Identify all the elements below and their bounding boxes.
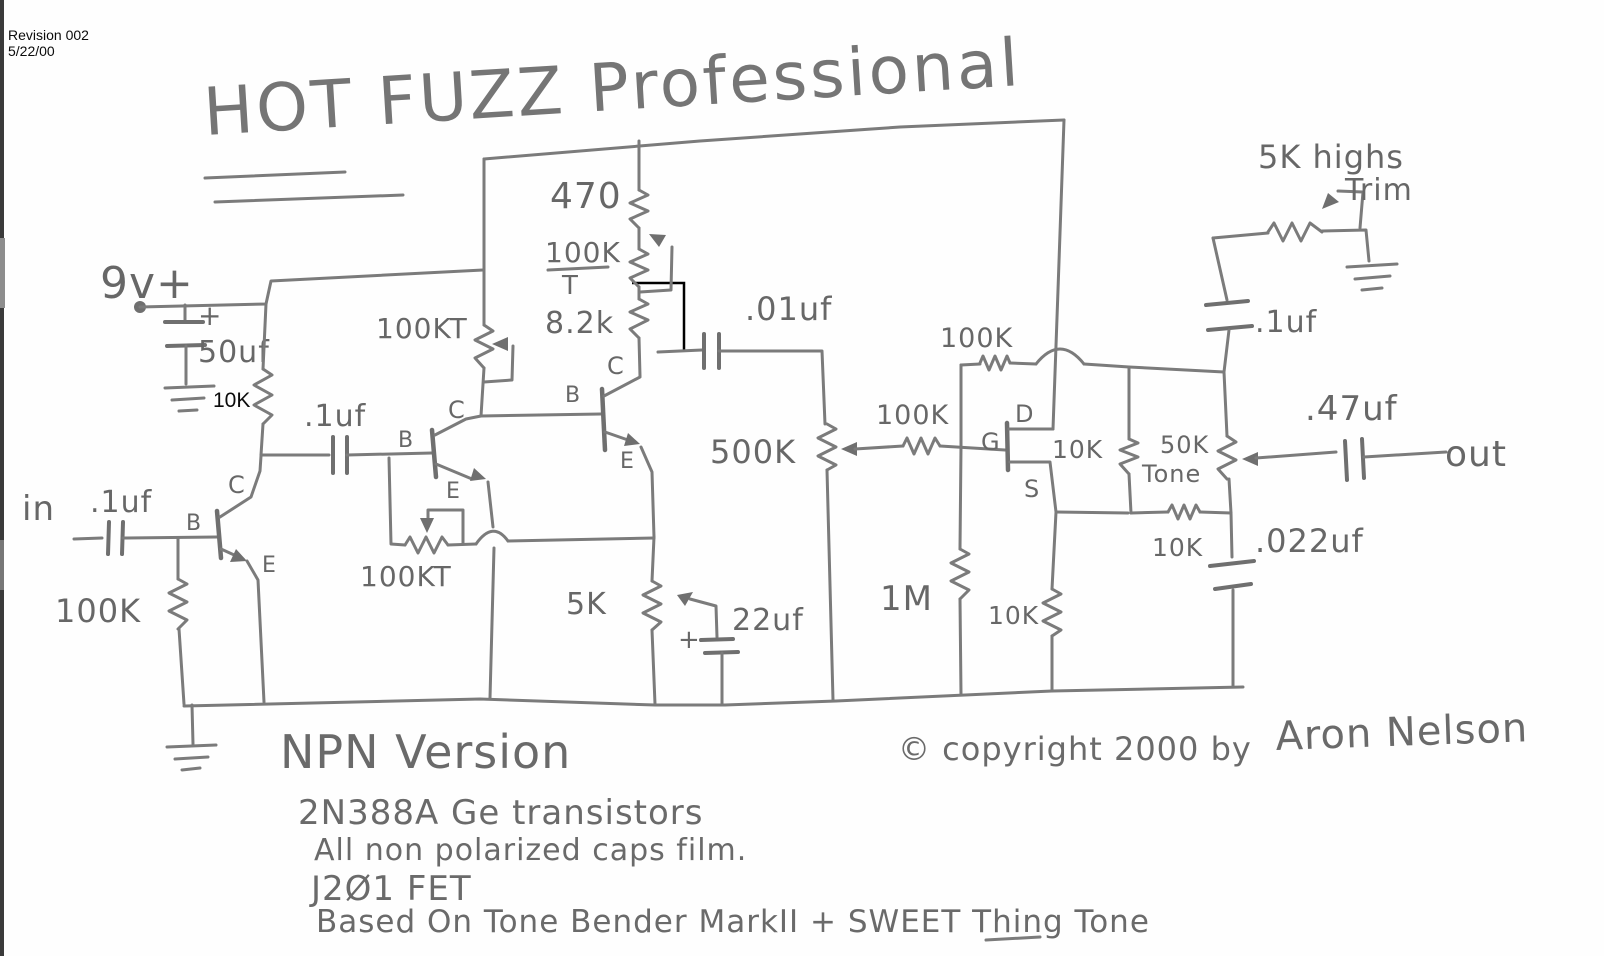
ground-bar (167, 745, 216, 747)
resistor-100k-gate-label: 100K (876, 400, 950, 431)
capacitor-1uf-out-label: .1uf (1255, 305, 1318, 340)
input-label: in (22, 489, 55, 529)
wire (488, 482, 493, 527)
resistor-100k-feedback-label: 100K (940, 323, 1014, 354)
trimmer-5k-highs-symbol (1268, 223, 1322, 241)
wire-input (74, 538, 102, 539)
wiper-arrow (420, 518, 434, 533)
pin-label-d: D (1015, 400, 1034, 428)
title-underline (205, 172, 345, 178)
trimmer-100k-col-label: 100K (545, 236, 621, 269)
resistor-100k-input-label: 100K (55, 592, 141, 630)
resistor-1m-label: 1M (880, 579, 933, 619)
wire (652, 537, 654, 581)
resistor-5k-symbol (643, 581, 661, 630)
note-based-on: Based On Tone Bender MarkII + SWEET Thin… (316, 904, 1150, 940)
wire (1129, 474, 1131, 513)
wire-q2c-q3b (481, 414, 601, 416)
wire (347, 453, 432, 455)
capacitor-1uf-out-plate (1206, 301, 1248, 305)
pin-label-g: G (981, 428, 1001, 456)
note-transistors: 2N388A Ge transistors (298, 793, 704, 833)
resistor-10k-drain-symbol (1120, 439, 1138, 474)
wire (1084, 364, 1224, 372)
potentiometer-50k-tone-symbol (1218, 436, 1236, 479)
wiper-arrow (649, 234, 666, 247)
capacitor-022uf-label: .022uf (1255, 522, 1364, 560)
wire (1229, 479, 1232, 557)
trimmer-100kt-lower-symbol (405, 537, 448, 553)
copyright-block: © copyright 2000 by Aron Nelson (898, 705, 1529, 768)
trimmer-100kt-upper-label: 100KT (376, 312, 468, 345)
pin-label-b: B (398, 428, 414, 453)
resistor-8k2-symbol (630, 299, 648, 338)
wire (179, 629, 184, 704)
fet-bar (1007, 423, 1008, 470)
capacitor-22uf-polarity: + (678, 625, 701, 655)
capacitor-22uf-label: 22uf (732, 603, 804, 638)
potentiometer-500k-symbol (818, 424, 836, 470)
trimmer-100kt-lower-bracket (428, 510, 463, 543)
wire (855, 446, 903, 449)
capacitor-022uf-plate (1210, 561, 1254, 566)
wire (1131, 512, 1168, 513)
wire (1052, 512, 1056, 589)
wire (652, 630, 655, 704)
capacitor-01uf-label: .01uf (745, 290, 832, 328)
wire (247, 561, 264, 702)
wire-hop (476, 531, 508, 544)
resistor-470-symbol (630, 190, 648, 228)
trimmer-5k-highs-name: Trim (1344, 173, 1413, 208)
capacitor-50uf-label: 50uf (198, 335, 270, 370)
potentiometer-500k-label: 500K (710, 433, 796, 471)
wire (1364, 452, 1446, 457)
pin-label-b: B (565, 383, 581, 408)
wire (641, 447, 654, 537)
scan-artifacts (0, 0, 5, 956)
note-version: NPN Version (280, 725, 571, 779)
wire (719, 351, 825, 424)
trimmer-100kt-upper-symbol (475, 325, 493, 368)
revision-date: 5/22/00 (8, 43, 55, 59)
copyright-author: Aron Nelson (1275, 705, 1529, 760)
wire-drain-column (1053, 120, 1064, 429)
ground-bar (175, 757, 208, 759)
wire (658, 350, 702, 352)
ground-symbol (165, 386, 214, 411)
schematic-canvas: Revision 002 5/22/00 10K HOT FUZZ Profes… (0, 0, 1604, 956)
capacitor-50uf-polarity: + (198, 299, 222, 332)
pin-label-b: B (186, 511, 202, 536)
resistor-10k-typed-label: 10K (213, 389, 250, 412)
resistor-8k2-label: 8.2k (545, 306, 614, 341)
supply-label: 9v+ (100, 258, 194, 309)
trimmer-5k-highs-label: 5K highs (1258, 138, 1404, 176)
wire (827, 470, 833, 700)
scan-smudge (0, 238, 5, 308)
resistor-10k-q1-symbol (254, 369, 272, 424)
revision-label: Revision 002 (8, 27, 89, 43)
wire (639, 338, 640, 376)
resistor-10k-source-label: 10K (988, 601, 1039, 630)
note-caps: All non polarized caps film. (314, 833, 747, 868)
wire (508, 538, 654, 541)
fet-j201: G D S (981, 400, 1056, 512)
note-fet: J2Ø1 FET (309, 869, 472, 909)
wire (1213, 238, 1227, 300)
resistor-100k-input-symbol (169, 579, 187, 629)
transistor-q2-bar (432, 430, 436, 477)
pin-label-c: C (228, 471, 246, 499)
potentiometer-50k-label: 50K (1160, 431, 1210, 459)
wire (448, 544, 476, 545)
wire-ground-rail (184, 687, 1243, 706)
wire (1256, 452, 1336, 458)
title-block: HOT FUZZ Professional (201, 24, 1023, 151)
transistor-q3-bar (602, 389, 605, 450)
resistor-100k-gate-symbol (903, 438, 940, 454)
ground-bar (165, 386, 214, 388)
transistor-q2: B C E (398, 396, 494, 698)
ground-bar (182, 768, 200, 770)
pin-label-e: E (262, 553, 277, 578)
pin-label-c: C (607, 352, 625, 380)
schematic-drawing: 9v+ + 50uf in .1uf 100K (22, 120, 1507, 770)
pin-label-e: E (446, 479, 461, 504)
title-underline (215, 195, 403, 202)
capacitor-47uf-label: .47uf (1305, 389, 1398, 429)
ground-symbol (1347, 264, 1397, 290)
wire (961, 364, 980, 365)
resistor-100k-feedback-symbol (980, 356, 1010, 370)
transistor-q2-emitter (436, 464, 472, 479)
wire (1224, 330, 1229, 372)
ground-bar (1347, 264, 1397, 267)
pin-label-c: C (448, 396, 466, 424)
wire (1322, 230, 1369, 261)
scan-smudge (0, 540, 4, 590)
capacitor-22uf-plate (701, 639, 733, 640)
wire (192, 705, 193, 744)
output-label: out (1445, 434, 1507, 475)
wire (389, 458, 405, 545)
scanned-schematic-page: Revision 002 5/22/00 10K HOT FUZZ Profes… (0, 0, 1604, 956)
resistor-5k-label: 5K (566, 587, 607, 622)
ground-symbol (167, 745, 216, 770)
trimmer-100kt-lower-label: 100KT (360, 560, 452, 593)
wiper-arrow (1322, 193, 1339, 209)
wire (490, 548, 494, 698)
ground-bar (179, 410, 197, 411)
wire (123, 537, 217, 538)
resistor-10k-mid-symbol (1168, 505, 1200, 519)
copyright-line: © copyright 2000 by (898, 730, 1252, 768)
resistor-1m-symbol (951, 549, 969, 599)
page-title: HOT FUZZ Professional (201, 24, 1023, 151)
wire (1010, 363, 1036, 364)
capacitor-interstage-label: .1uf (304, 399, 367, 434)
emitter-arrow (470, 468, 486, 481)
capacitor-022uf-plate (1215, 584, 1251, 589)
capacitor-input-label: .1uf (90, 485, 153, 520)
emitter-arrow (624, 433, 640, 446)
wire (960, 599, 961, 694)
wire (1213, 233, 1268, 238)
resistor-10k-drain-label: 10K (1052, 435, 1103, 464)
wire (261, 424, 263, 455)
wire (1200, 512, 1231, 513)
pin-label-e: E (620, 449, 635, 474)
potentiometer-50k-name: Tone (1141, 460, 1201, 488)
capacitor-47uf-plate (1362, 439, 1364, 478)
ground-bar (1355, 276, 1390, 279)
resistor-10k-source-symbol (1043, 589, 1061, 636)
wire (1224, 372, 1227, 436)
wire (960, 447, 961, 549)
trimmer-100k-col-symbol (630, 249, 648, 287)
transistor-q3-emitter (605, 432, 628, 440)
wire-hop (1036, 349, 1084, 364)
scan-edge (0, 0, 4, 956)
wire (481, 368, 484, 416)
capacitor-47uf-plate (1345, 441, 1347, 480)
wire (1056, 512, 1128, 513)
resistor-470-label: 470 (550, 176, 622, 217)
trimmer-100k-col-t: T (561, 271, 579, 301)
capacitor-input-plate (108, 522, 109, 554)
ground-bar (1362, 288, 1382, 290)
transistor-q1: B C E (186, 456, 277, 702)
resistor-10k-mid-label: 10K (1152, 533, 1203, 562)
ground-bar (172, 398, 204, 400)
pin-label-s: S (1024, 475, 1040, 503)
